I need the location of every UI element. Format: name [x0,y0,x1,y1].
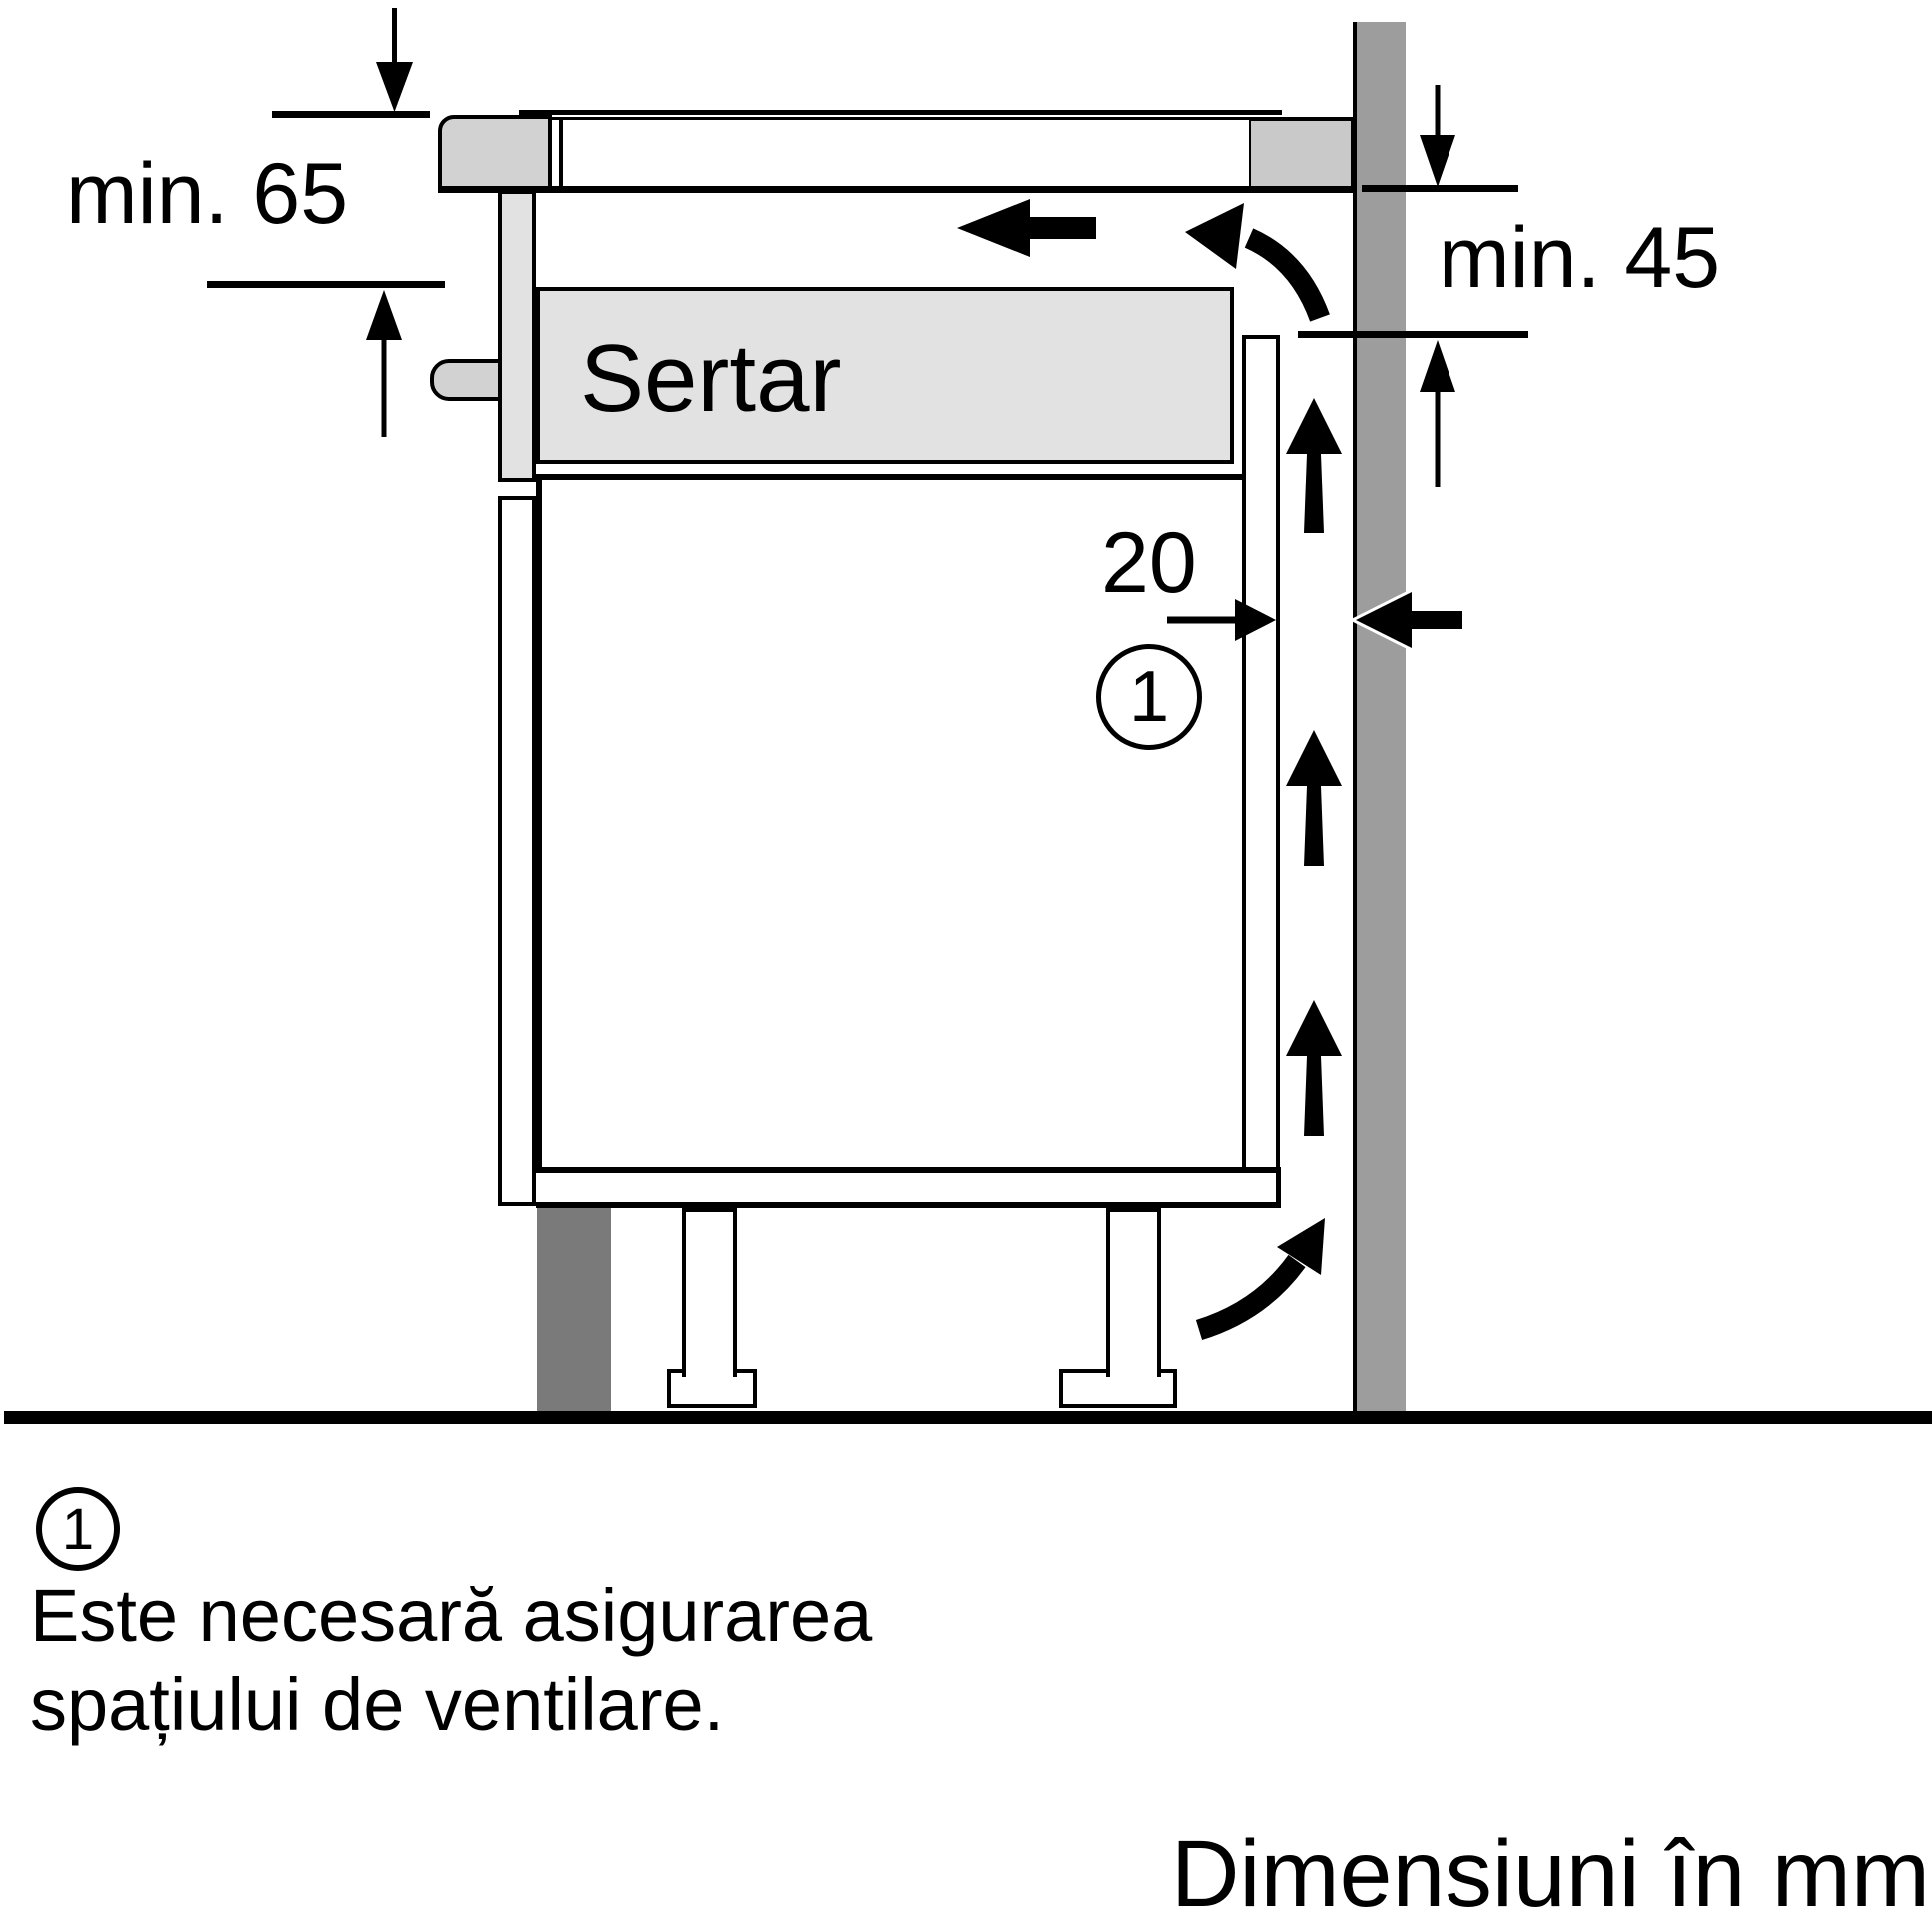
worktop-top-line [552,117,1353,120]
legend-text-line1: Este necesară asigurarea [30,1579,872,1653]
cabinet-back-panel [1242,335,1280,1171]
dim-up-arrow-right-icon [1420,340,1455,487]
cabinet-leg-right [1106,1208,1161,1377]
cabinet-interior-left-line [536,480,542,1171]
hob-glass-line [519,110,1282,115]
installation-diagram: Sertar min. 65 min. 45 20 1 1 Este neces… [0,0,1932,1932]
airflow-curved-bottom-arrow-icon [1199,1218,1325,1330]
drawer-label: Sertar [580,331,841,427]
hob-edge-profile [438,115,552,191]
cabinet-side-panel-upper [498,190,536,482]
dim-line-min65-bottom [207,281,445,288]
drawer-shelf-line [536,474,1242,480]
cabinet-plinth [537,1208,611,1411]
wall-section [1353,22,1406,1411]
cabinet-leg-left [682,1208,737,1377]
drawer-box: Sertar [536,287,1234,464]
legend-text-line2: spațiului de ventilare. [30,1668,724,1742]
callout-1-marker: 1 [1096,644,1202,750]
dim-down-arrow-right-icon [1420,85,1455,187]
airflow-up-arrow-2-icon [1286,730,1342,866]
dim-line-min45-bottom [1298,331,1528,338]
dim-line-min45-top [1362,185,1518,192]
dim-label-min65: min. 65 [66,151,348,237]
floor-line [4,1411,1932,1424]
dim-line-min65-top [272,111,430,118]
units-caption: Dimensiuni în mm [1171,1827,1930,1922]
cabinet-side-panel-lower [498,496,536,1206]
dim-up-arrow-left-icon [366,290,402,437]
dim-label-min45: min. 45 [1439,215,1720,301]
airflow-left-arrow-icon [957,199,1096,257]
dim-label-gap20: 20 [1101,520,1197,606]
dim-down-arrow-left-icon [376,8,413,112]
airflow-up-arrow-3-icon [1286,1000,1342,1136]
worktop-bottom-line [438,186,1353,193]
airflow-up-arrow-1-icon [1286,398,1342,533]
worktop-section-block [1249,119,1353,189]
hob-body-front-line [559,118,563,190]
legend-callout-1: 1 [36,1487,120,1571]
cabinet-bottom-panel [536,1167,1281,1208]
